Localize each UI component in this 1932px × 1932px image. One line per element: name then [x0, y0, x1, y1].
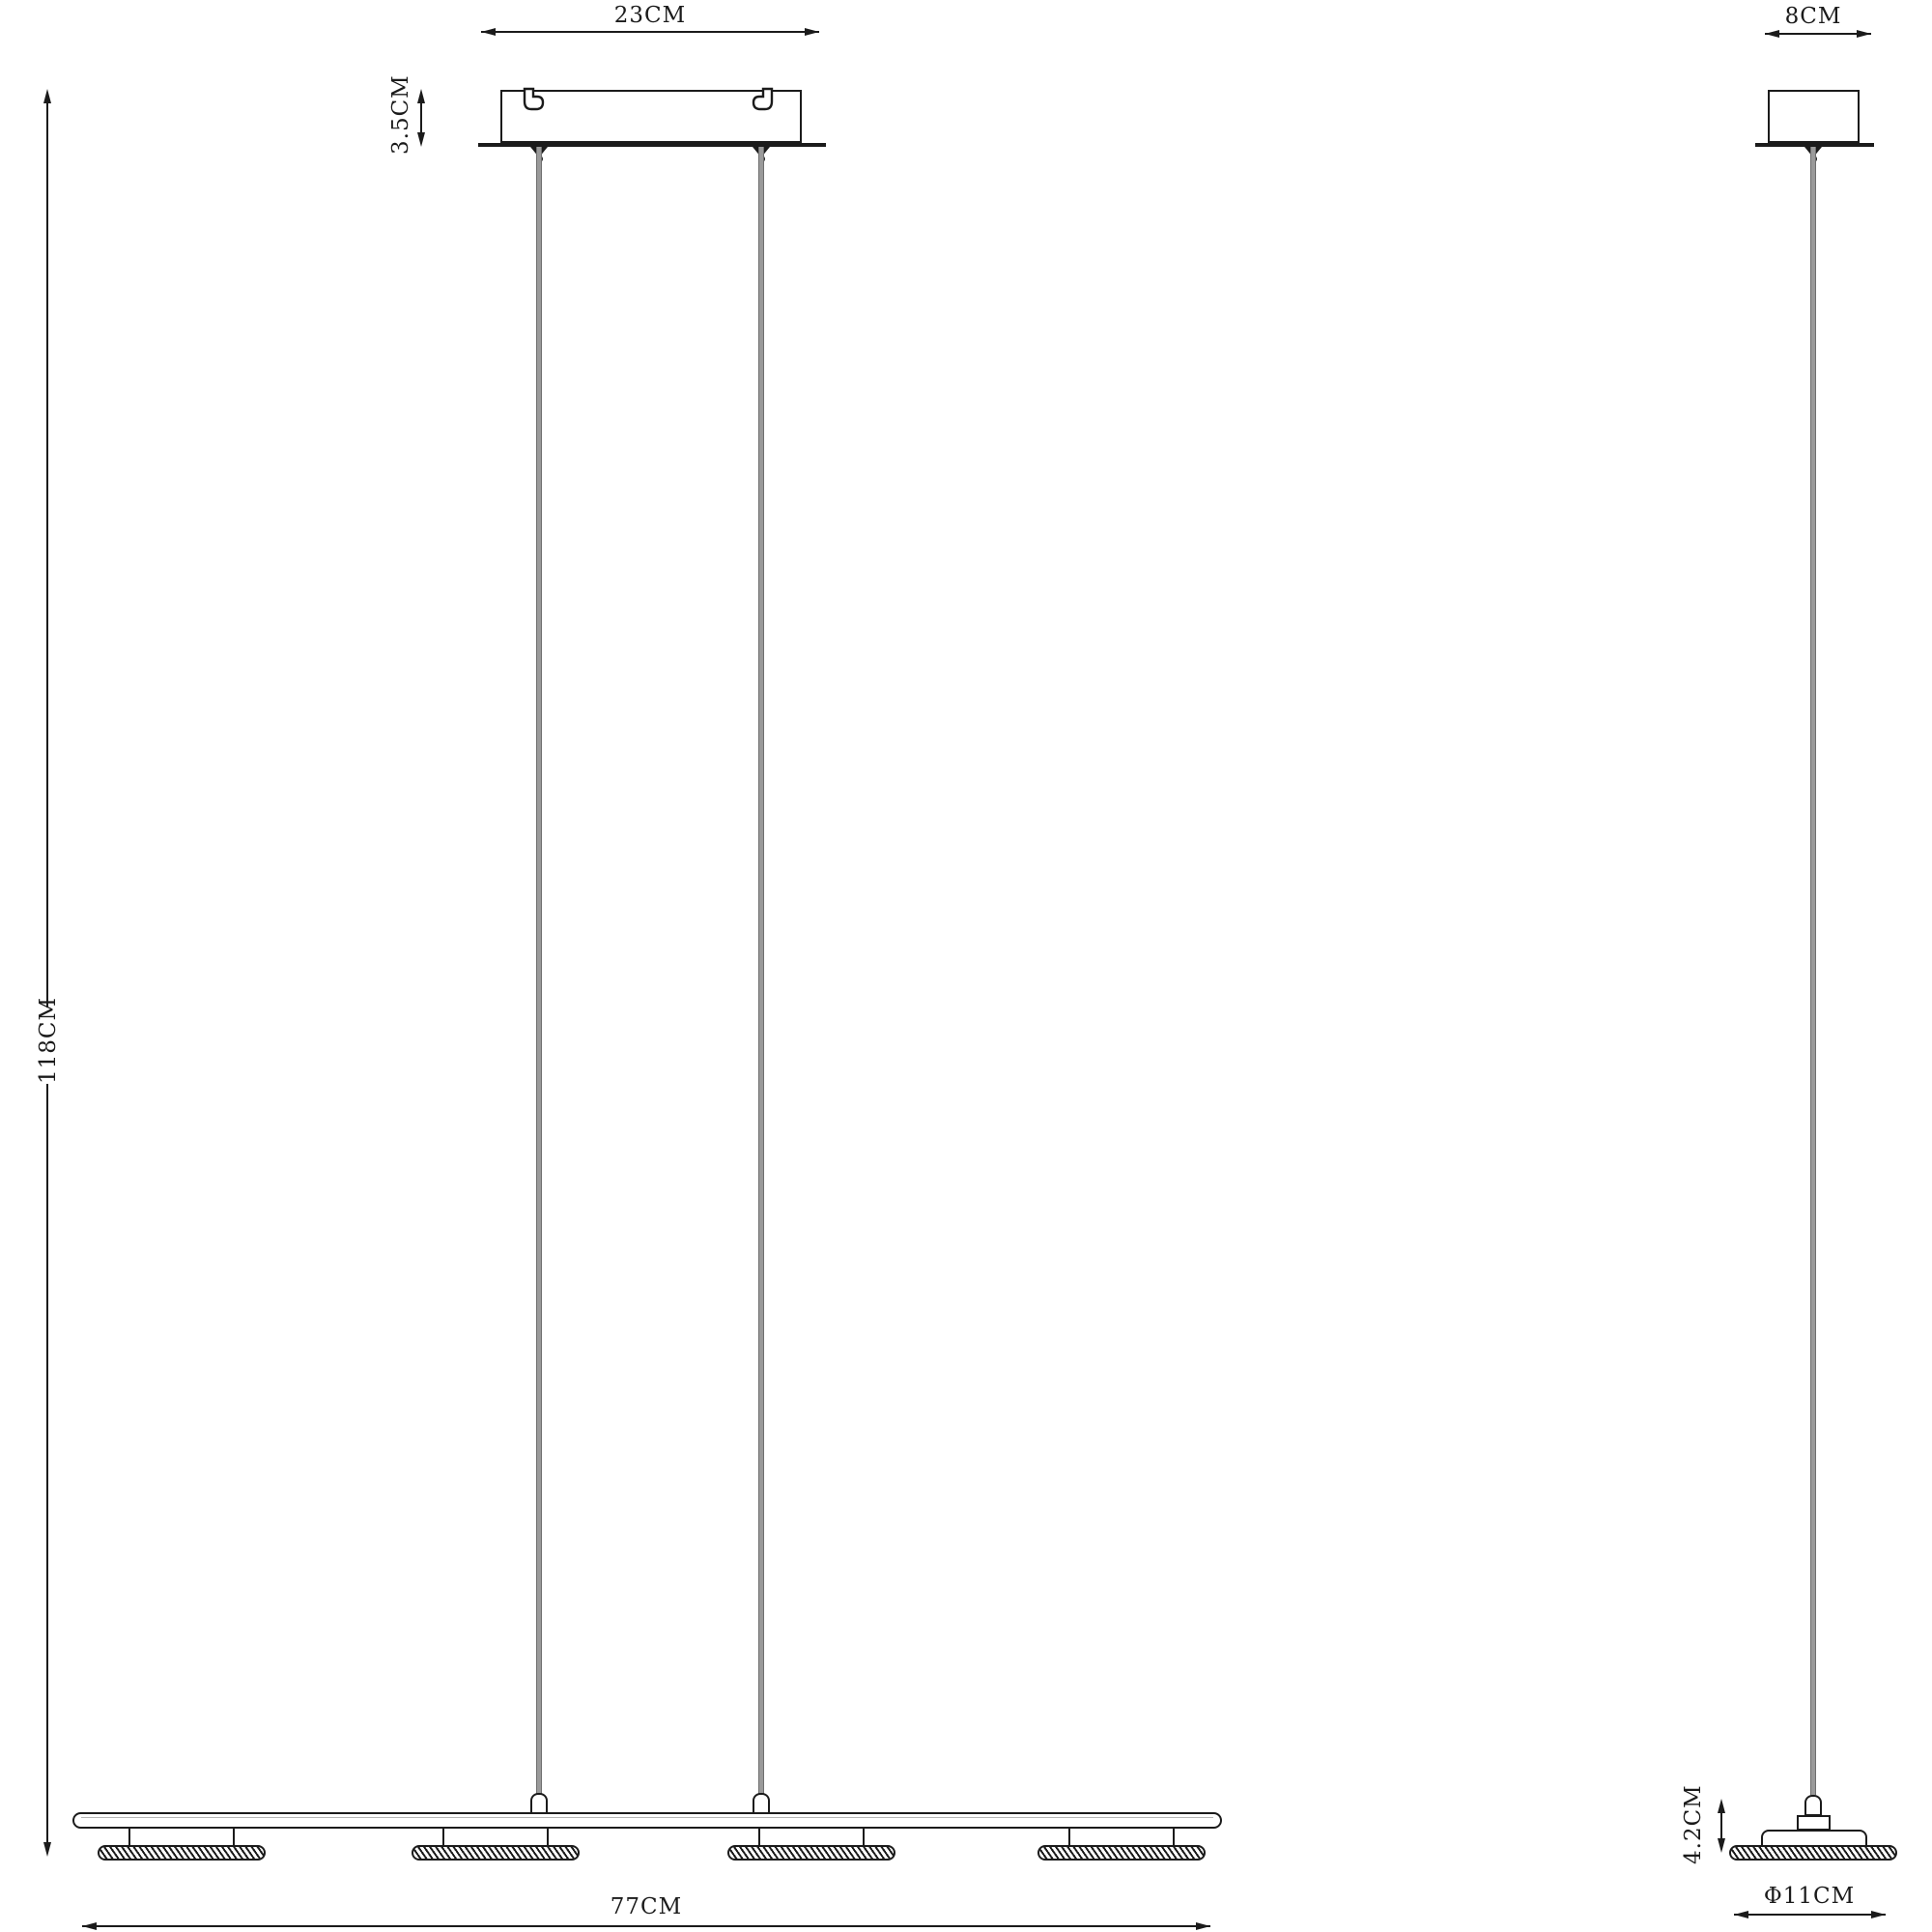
arrowhead-left-icon [1765, 30, 1779, 38]
suspension-cable-side [1810, 147, 1816, 1795]
arrowhead-left-icon [82, 1922, 97, 1930]
lamp-shade-disc [1037, 1845, 1206, 1861]
head-connector-top [1804, 1795, 1822, 1816]
dim-label-canopy-width-side: 8CM [1755, 4, 1871, 29]
dim-label-bar-length: 77CM [569, 1894, 724, 1919]
dim-label-shade-diameter: Φ11CM [1732, 1884, 1887, 1909]
lamp-shade-disc [98, 1845, 266, 1861]
lamp-bar-highlight [81, 1817, 1213, 1818]
suspension-cable-right [758, 147, 764, 1794]
arrowhead-left-icon [1734, 1911, 1748, 1918]
arrowhead-right-icon [805, 28, 819, 36]
dim-label-canopy-height: 3.5CM [388, 77, 413, 155]
dim-line-overall-height-lower [46, 1084, 48, 1845]
dim-line-shade-diameter [1734, 1914, 1886, 1916]
arrowhead-right-icon [1857, 30, 1871, 38]
arrowhead-right-icon [1871, 1911, 1886, 1918]
arrowhead-left-icon [481, 28, 496, 36]
lamp-shade-disc [412, 1845, 580, 1861]
cable-gripper-right [753, 1793, 770, 1814]
arrowhead-down-icon [43, 1842, 51, 1857]
dim-line-canopy-width-side [1765, 33, 1871, 35]
arrowhead-right-icon [1196, 1922, 1210, 1930]
lamp-shade-disc [727, 1845, 895, 1861]
head-connector-step [1797, 1815, 1831, 1831]
arrowhead-up-icon [1718, 1799, 1725, 1813]
dim-line-canopy-width-front [481, 31, 819, 33]
lamp-shade-disc-side [1729, 1845, 1897, 1861]
arrowhead-down-icon [417, 132, 425, 147]
arrowhead-down-icon [1718, 1838, 1725, 1853]
dim-label-canopy-width-front: 23CM [592, 3, 708, 28]
ceiling-canopy-side [1768, 90, 1860, 143]
lamp-bar [72, 1812, 1222, 1829]
lamp-dimension-drawing: 23CM 3.5CM [0, 0, 1932, 1932]
keyhole-slot-left-icon [520, 89, 549, 114]
dim-line-bar-length [82, 1925, 1210, 1927]
arrowhead-up-icon [43, 89, 51, 103]
dim-label-overall-height: 118CM [36, 1007, 61, 1084]
suspension-cable-left [536, 147, 542, 1794]
arrowhead-up-icon [417, 89, 425, 103]
keyhole-slot-right-icon [748, 89, 777, 114]
dim-line-overall-height-upper [46, 99, 48, 1008]
dim-label-head-height: 4.2CM [1681, 1787, 1706, 1864]
cable-gripper-left [530, 1793, 548, 1814]
